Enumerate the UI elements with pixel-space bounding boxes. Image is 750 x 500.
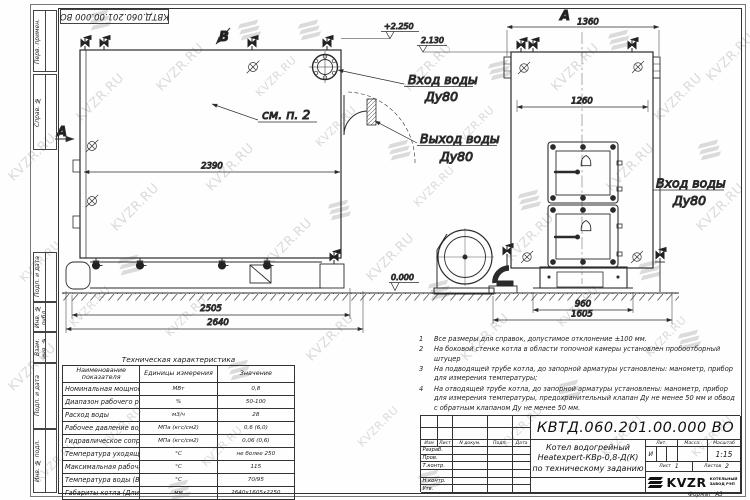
- position-mark-icon: [631, 251, 643, 263]
- dim-1360: 1360: [577, 18, 599, 28]
- margin-label: Инв. № дубл.: [34, 303, 45, 331]
- label-inlet-top-dn: Ду80: [424, 89, 458, 104]
- sheet-row: Лист1 Листов2: [646, 462, 741, 472]
- margin-cell: Взам. инв. №: [33, 332, 57, 363]
- ash-box: [533, 267, 633, 288]
- hdr-list: Лист: [438, 440, 453, 447]
- sheets-value: 2: [725, 463, 729, 470]
- format-note: Формат А3: [688, 492, 723, 498]
- table-row: Габариты котла (Длинна х ширина х высота…: [63, 487, 295, 500]
- valve-icon: [656, 248, 666, 263]
- tech-table-title: Техническая характеристика: [62, 354, 295, 365]
- mass-value: [678, 447, 708, 462]
- dim-960: 960: [575, 300, 591, 310]
- scale-value: 1:15: [708, 447, 741, 462]
- empty-cell: [531, 478, 646, 493]
- revision-header: Изм Лист N докум. Подп. Дата: [421, 440, 531, 447]
- label-inlet-side-dn: Ду80: [672, 193, 706, 208]
- table-row: Гидравлическое сопротивление котлаМПа (к…: [63, 435, 295, 448]
- dim-2390: 2390: [201, 162, 223, 172]
- margin-cell: Инв. № дубл.: [33, 302, 57, 332]
- margin-cell: Перв. примен.: [33, 10, 57, 72]
- sheets-label: Листов: [704, 464, 721, 469]
- boiler-side-view: [55, 28, 415, 289]
- view-letter-a-front: А: [559, 9, 570, 24]
- lower-furnace-door: [548, 205, 622, 267]
- position-mark-icon: [632, 61, 644, 73]
- margin-cell: Подп. и дата: [33, 252, 57, 302]
- dim-2505: 2505: [200, 304, 222, 314]
- table-row: Номинальная мощностьМВт0,8: [63, 383, 295, 396]
- label-inlet-side: Вход воды: [656, 176, 726, 191]
- valve-icon: [529, 38, 539, 53]
- sheet-label: Лист: [659, 464, 671, 469]
- position-mark-icon: [247, 61, 260, 74]
- drain-valve-icon: [218, 258, 228, 269]
- col-header-value: Значение: [217, 366, 294, 383]
- label-outlet-dn: Ду80: [439, 149, 473, 164]
- note-item: 1Все размеры для справок, допустимое отк…: [419, 335, 740, 344]
- label-outlet: Выход воды: [420, 131, 500, 146]
- table-row: Температура воды (Вход/выход)°С70/95: [63, 474, 295, 487]
- tech-characteristics-table: Техническая характеристика Наименование …: [62, 354, 295, 500]
- col-header-name: Наименование показателя: [63, 366, 140, 383]
- inlet-flange: [309, 51, 341, 83]
- valve-icon: [248, 36, 258, 51]
- elev-zero: 0.000: [391, 273, 414, 282]
- table-row: Максимальная рабочая температура воды°С1…: [63, 461, 295, 474]
- drain-valve-icon: [263, 258, 273, 269]
- col-header-units: Единицы измерения: [140, 366, 217, 383]
- margin-label: Справ. №: [34, 75, 45, 149]
- table-header-row: Наименование показателя Единицы измерени…: [63, 366, 295, 383]
- hdr-podp: Подп.: [488, 440, 513, 447]
- position-mark-icon: [86, 195, 99, 208]
- label-inlet-top: Вход воды: [408, 72, 478, 87]
- margin-cell: Справ. №: [33, 74, 57, 150]
- dim-1260: 1260: [571, 97, 593, 107]
- margin-label: Подп. и дата: [34, 364, 45, 428]
- valve-icon: [517, 38, 527, 53]
- valve-icon: [323, 36, 333, 51]
- scale-label: Масштаб: [708, 440, 741, 447]
- hdr-data: Дата: [513, 440, 531, 447]
- margin-label: Инв. № подл.: [34, 430, 45, 492]
- hdr-doc: N докум.: [453, 440, 488, 447]
- lit-label: Лит.: [646, 440, 678, 447]
- view-letter-b: В: [219, 30, 229, 45]
- kvzr-logo-icon: [649, 476, 664, 489]
- outlet-pipe: [344, 92, 415, 163]
- notes-list: 1Все размеры для справок, допустимое отк…: [419, 335, 740, 414]
- label-see-note: см. п. 2: [262, 107, 310, 122]
- margin-label: Перв. примен.: [34, 11, 45, 71]
- lit-mass-scale-header: Лит. Масса: Масштаб: [646, 440, 741, 447]
- margin-cell: Подп. и дата: [33, 363, 57, 429]
- margin-cell: Инв. № подл.: [33, 429, 57, 493]
- note-item: 3На подводящей трубе котла, до запорной …: [419, 365, 740, 384]
- lit-value: И: [646, 447, 657, 462]
- valve-icon: [81, 36, 91, 51]
- signature-rows: Разраб. Пров. Т.контр. Н.контр. Утв.: [421, 447, 531, 493]
- drawing-sheet: KVZR.RUKVZR.RUKVZR.RUKVZR.RUKVZR.RUKVZR.…: [0, 0, 750, 500]
- labels: Вход воды Ду80 Выход воды Ду80 Вход воды…: [56, 9, 726, 208]
- rotated-designation: КВТД.060.201.00.000 ВО: [60, 9, 169, 24]
- hdr-izm: Изм: [421, 440, 438, 447]
- section-letter-a: А: [56, 125, 67, 140]
- dimensions: 2390 2505 2640 1360 1260 960 160: [66, 18, 672, 334]
- blower-fan: [434, 228, 517, 294]
- valve-icon: [628, 38, 638, 53]
- valve-icon: [330, 250, 340, 265]
- title-block: Изм Лист N докум. Подп. Дата Разраб. Про…: [420, 415, 740, 492]
- lit-mass-scale-values: И 1:15: [646, 447, 741, 462]
- drain-valve-icon: [136, 258, 146, 269]
- boiler-front-view: [504, 32, 666, 292]
- elevation-marks: +2.250 2.130 0.000: [341, 22, 511, 291]
- position-mark-icon: [86, 140, 99, 153]
- boiler-skid: [66, 262, 344, 289]
- valve-icon: [100, 36, 110, 51]
- note-item: 4На отводящей трубе котла, до запорной а…: [419, 385, 740, 413]
- mass-label: Масса:: [678, 440, 708, 447]
- manufacturer-logo: KVZR КОТЕЛЬНЫЙЗАВОД РЭП: [646, 472, 741, 493]
- elev-mid: 2.130: [421, 36, 444, 45]
- logo-text: KVZR: [667, 475, 707, 490]
- table-row: Расход водым3/ч28: [63, 409, 295, 422]
- dim-2640: 2640: [207, 318, 229, 328]
- upper-furnace-door: [548, 142, 622, 203]
- margin-label: Подп. и дата: [34, 253, 45, 301]
- dim-1605: 1605: [571, 310, 593, 320]
- elev-top: +2.250: [384, 22, 414, 31]
- margin-label: Взам. инв. №: [34, 333, 45, 362]
- table-row: Температура уходящих газов°Сне более 250: [63, 448, 295, 461]
- table-row: Диапазон рабочего регулирования%50-100: [63, 396, 295, 409]
- doc-designation: КВТД.060.201.00.000 ВО: [531, 416, 741, 440]
- position-mark-icon: [518, 62, 530, 74]
- doc-name: Котел водогрейный Heatexpert-КВр-0,8-Д(К…: [531, 440, 646, 478]
- revision-grid: [421, 416, 531, 440]
- note-item: 2На боковой стенке котла в области топоч…: [419, 345, 740, 364]
- drain-valve-icon: [92, 258, 102, 269]
- table-row: Рабочее давление водыМПа (кгс/см2)0,6 (6…: [63, 422, 295, 435]
- sheet-value: 1: [675, 463, 679, 470]
- position-mark-icon: [521, 251, 533, 263]
